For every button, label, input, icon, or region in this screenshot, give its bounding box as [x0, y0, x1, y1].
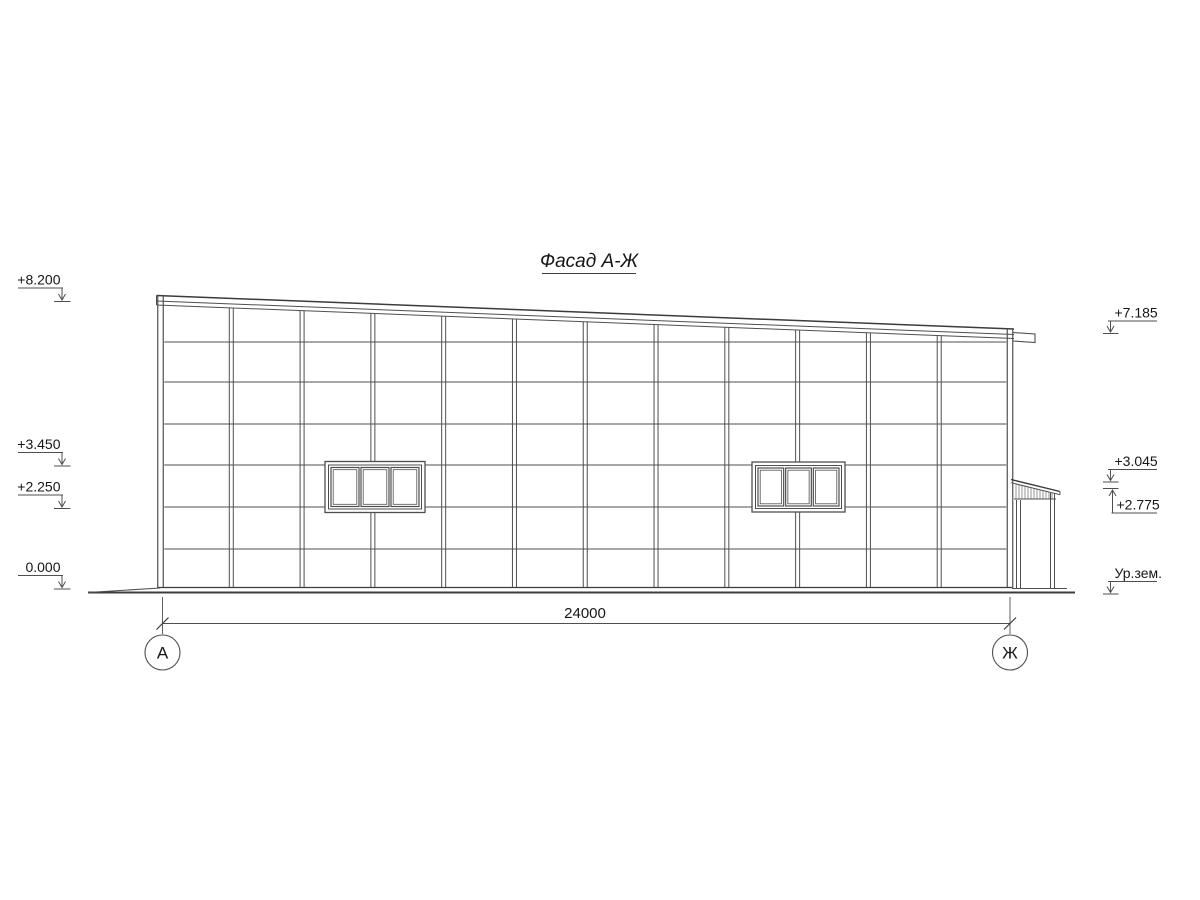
- dimension-value: 24000: [564, 605, 606, 622]
- elevation-mark-right: +7.185: [1103, 305, 1158, 334]
- elevation-label: Ур.зем.: [1115, 565, 1163, 581]
- axis-label-right: Ж: [1002, 644, 1018, 663]
- elevation-mark-right: Ур.зем.: [1103, 565, 1162, 594]
- elevation-label: +2.250: [17, 479, 60, 495]
- elevation-label: +3.045: [1115, 453, 1158, 469]
- gutter-outline: [1013, 333, 1035, 343]
- window-3pane: [752, 462, 845, 512]
- elevation-mark-left: 0.000: [18, 559, 71, 589]
- elevation-label: 0.000: [25, 559, 60, 575]
- drawing-title: Фасад А-Ж: [540, 251, 640, 272]
- facade-elevation-drawing: Фасад А-Ж +8.200+3.450+2.2500.000+7.185+…: [0, 0, 1200, 900]
- roof-edge-line: [157, 301, 1015, 335]
- roof-edge-line: [157, 296, 1015, 330]
- elevation-mark-right: +3.045: [1103, 453, 1158, 482]
- window-3pane: [325, 462, 425, 513]
- building-facade-grid: [157, 296, 1015, 588]
- axis-markers: [145, 635, 1028, 670]
- axis-label-left: А: [157, 644, 169, 663]
- elevation-label: +8.200: [17, 272, 60, 288]
- annex-roof-line2: [1011, 483, 1060, 495]
- elevation-label: +2.775: [1117, 497, 1160, 513]
- elevation-marks: +8.200+3.450+2.2500.000+7.185+3.045+2.77…: [17, 272, 1162, 595]
- roof-gutter: [1013, 333, 1035, 343]
- roof-edge-line: [157, 305, 1015, 339]
- elevation-mark-right: +2.775: [1103, 489, 1160, 514]
- annex-roof-top: [1011, 480, 1060, 492]
- ground-line: [88, 588, 1075, 593]
- facade-drawing-sheet: Фасад А-Ж +8.200+3.450+2.2500.000+7.185+…: [0, 0, 1200, 900]
- facade-windows: [325, 462, 845, 513]
- annex-structure: [1011, 480, 1067, 589]
- elevation-label: +7.185: [1115, 305, 1158, 321]
- elevation-mark-left: +8.200: [17, 272, 70, 302]
- window-outer-frame: [325, 462, 425, 513]
- elevation-mark-left: +2.250: [17, 479, 70, 509]
- window-outer-frame: [752, 462, 845, 512]
- elevation-label: +3.450: [17, 436, 60, 452]
- elevation-mark-left: +3.450: [17, 436, 70, 466]
